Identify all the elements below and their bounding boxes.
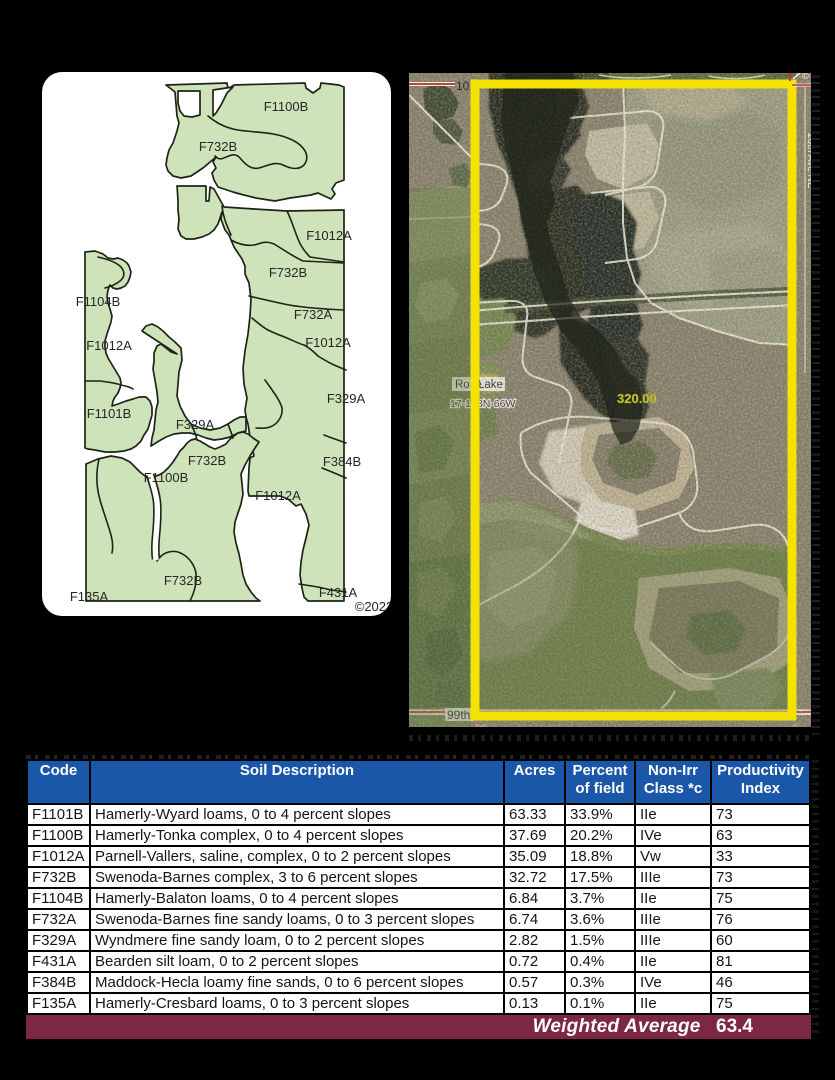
svg-text:©2023: ©2023 <box>355 599 391 614</box>
svg-text:F1101B: F1101B <box>87 406 132 421</box>
svg-text:10: 10 <box>456 79 470 93</box>
svg-text:20th Ave NE: 20th Ave NE <box>805 133 811 189</box>
svg-text:F732A: F732A <box>294 307 333 322</box>
svg-text:F1012A: F1012A <box>255 488 301 503</box>
svg-text:F732B: F732B <box>188 453 226 468</box>
svg-text:F1012A: F1012A <box>306 228 352 243</box>
svg-text:F1100B: F1100B <box>144 470 189 485</box>
svg-text:F329A: F329A <box>327 391 366 406</box>
svg-text:F329A: F329A <box>176 417 215 432</box>
svg-text:F135A: F135A <box>70 589 109 604</box>
svg-text:320.00: 320.00 <box>617 391 657 406</box>
svg-text:F732B: F732B <box>199 139 237 154</box>
svg-text:F732B: F732B <box>164 573 202 588</box>
svg-text:F1104B: F1104B <box>76 294 121 309</box>
svg-text:©: © <box>802 73 809 81</box>
svg-text:F1012A: F1012A <box>305 335 351 350</box>
svg-text:F1012A: F1012A <box>86 338 132 353</box>
svg-text:F1100B: F1100B <box>264 99 309 114</box>
svg-text:F732B: F732B <box>269 265 307 280</box>
svg-text:F431A: F431A <box>319 585 358 600</box>
svg-text:F384B: F384B <box>323 454 361 469</box>
